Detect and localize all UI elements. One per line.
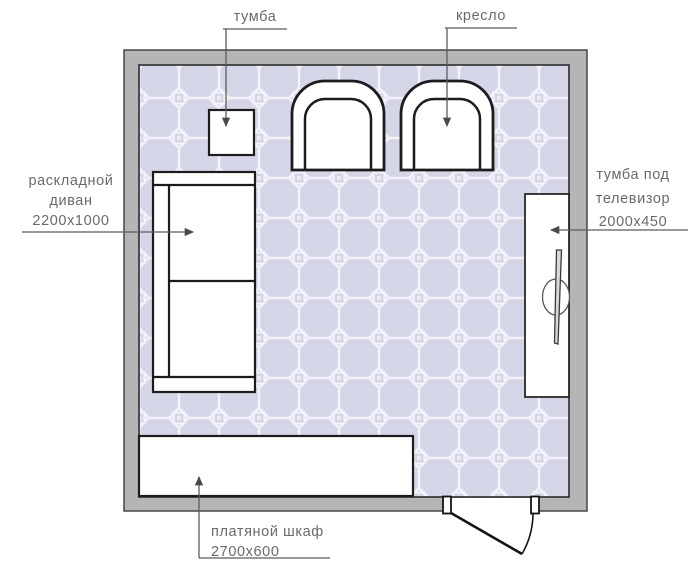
label-tv-stand-line1: тумба под	[583, 164, 683, 188]
label-tv-stand: тумба под телевизор 2000x450	[583, 164, 683, 235]
label-wardrobe: платяной шкаф 2700x600	[211, 522, 341, 562]
door-opening	[452, 498, 531, 514]
label-sofa-line2: диван	[15, 191, 127, 211]
label-armchair: кресло	[445, 6, 517, 26]
floor-plan-drawing	[0, 0, 695, 576]
door-jamb-right	[531, 497, 539, 514]
label-tv-stand-size: 2000x450	[583, 211, 683, 235]
door-jamb-left	[443, 497, 451, 514]
tv-stand-shape	[525, 194, 570, 397]
cabinet-shape	[209, 110, 254, 155]
label-wardrobe-size: 2700x600	[211, 542, 341, 562]
label-sofa-line1: раскладной	[15, 171, 127, 191]
floor-plan-canvas: тумба кресло раскладной диван 2200x1000 …	[0, 0, 695, 576]
label-cabinet-text: тумба	[234, 9, 277, 25]
sofa-shape	[153, 172, 255, 392]
label-sofa-size: 2200x1000	[15, 211, 127, 231]
door	[443, 497, 539, 555]
wardrobe-shape	[139, 436, 413, 496]
armchair-left-shape	[292, 81, 384, 170]
label-wardrobe-name: платяной шкаф	[211, 522, 341, 542]
label-tv-stand-line2: телевизор	[583, 188, 683, 212]
label-cabinet: тумба	[223, 7, 287, 27]
label-sofa: раскладной диван 2200x1000	[15, 171, 127, 231]
label-armchair-text: кресло	[456, 8, 506, 24]
